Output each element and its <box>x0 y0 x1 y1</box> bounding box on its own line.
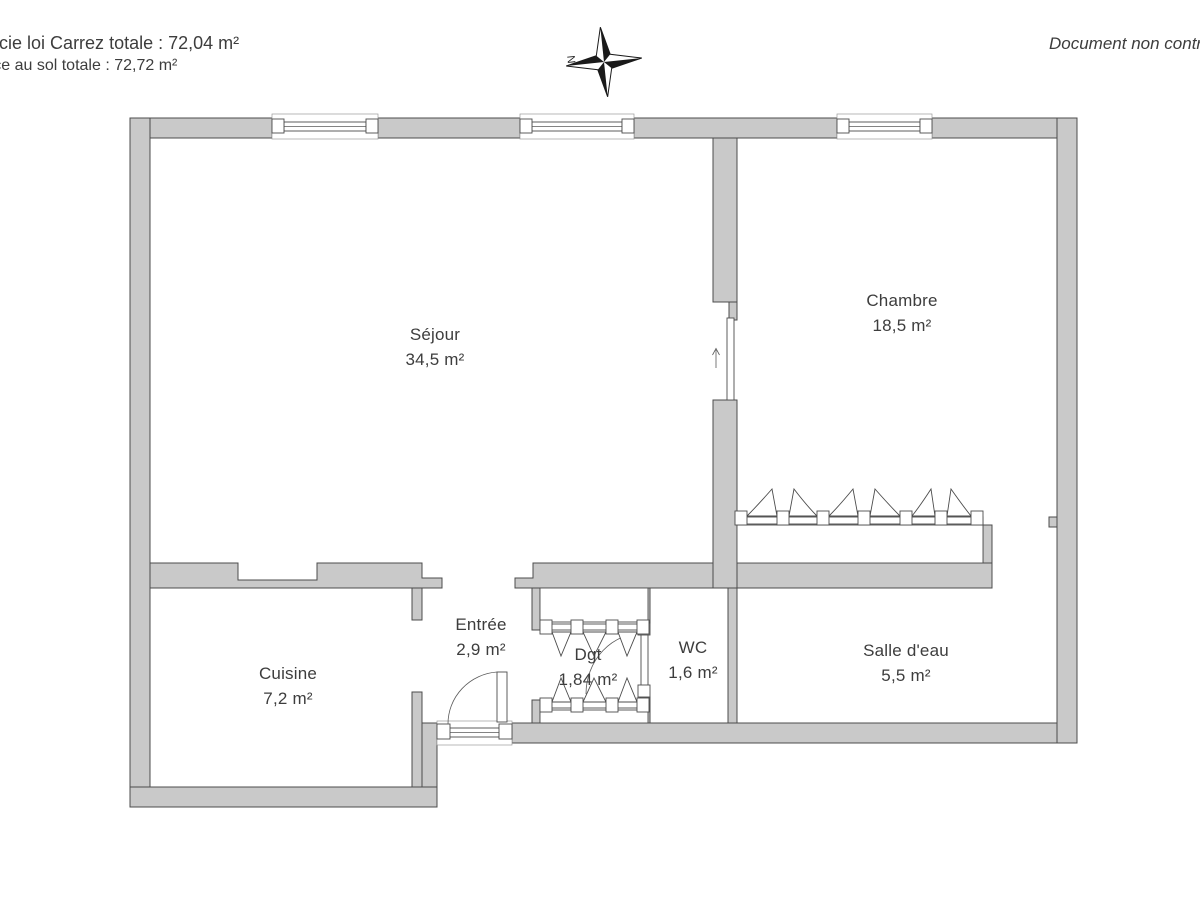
room-name: Entrée <box>406 612 556 637</box>
north-label: N <box>564 55 577 64</box>
window-icon <box>520 114 634 139</box>
sliding-door <box>713 318 735 400</box>
room-area: 18,5 m² <box>802 313 1002 338</box>
room-area: 1,6 m² <box>633 660 753 685</box>
room-name: Cuisine <box>188 661 388 686</box>
room-label-salle-eau: Salle d'eau 5,5 m² <box>806 638 1006 688</box>
room-label-wc: WC 1,6 m² <box>633 635 753 685</box>
slide-direction-arrow-icon <box>713 349 720 369</box>
window-icon <box>837 114 932 139</box>
entry-door <box>437 672 512 745</box>
room-label-sejour: Séjour 34,5 m² <box>335 322 535 372</box>
room-area: 5,5 m² <box>806 663 1006 688</box>
window-icon <box>272 114 378 139</box>
room-label-chambre: Chambre 18,5 m² <box>802 288 1002 338</box>
chambre-closet <box>735 489 983 563</box>
room-name: WC <box>633 635 753 660</box>
room-label-cuisine: Cuisine 7,2 m² <box>188 661 388 711</box>
room-area: 34,5 m² <box>335 347 535 372</box>
floor-plan: N <box>0 0 1200 900</box>
room-name: Chambre <box>802 288 1002 313</box>
room-area: 7,2 m² <box>188 686 388 711</box>
floorplan-page: { "header": { "carrez_text": "Superficie… <box>0 0 1200 900</box>
compass-icon: N <box>562 23 646 101</box>
room-name: Salle d'eau <box>806 638 1006 663</box>
room-name: Séjour <box>335 322 535 347</box>
